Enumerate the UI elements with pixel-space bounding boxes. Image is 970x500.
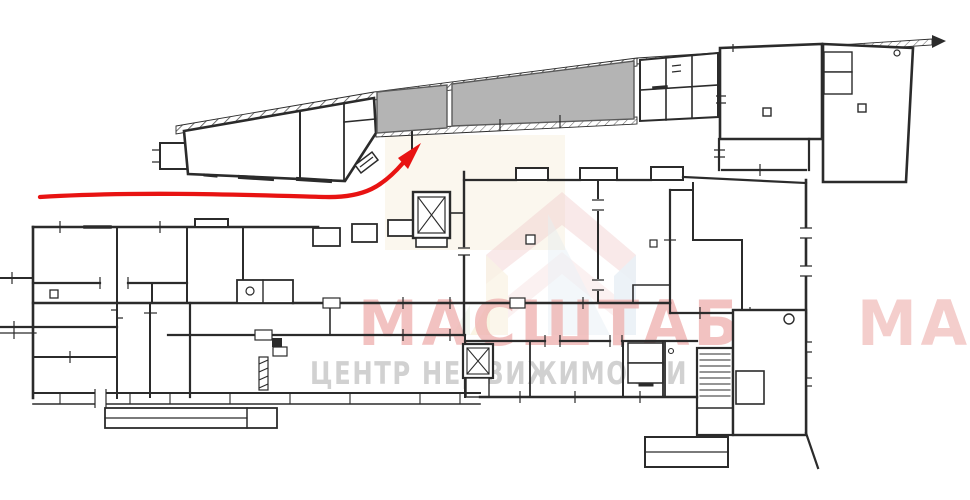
room-a (720, 44, 822, 139)
bottom-band (33, 389, 697, 428)
watermark-title: МАСШТАБ (358, 287, 743, 360)
shaded-hall-small (377, 85, 447, 133)
wall-end-arrow-icon (932, 35, 946, 48)
floorplan-svg: МАСШТАБ МАСШТАБ ЦЕНТР НЕДВИЖИМОСТИ (0, 0, 970, 500)
watermark-title-tile-fragment: МАСШТАБ (857, 287, 970, 360)
tall-right-room (733, 310, 806, 435)
staircase (697, 348, 733, 435)
floorplan-page: МАСШТАБ МАСШТАБ ЦЕНТР НЕДВИЖИМОСТИ (0, 0, 970, 500)
elevator-shaft-upper (413, 192, 450, 247)
floorplan-walls (0, 35, 946, 468)
top-right-wing (640, 44, 913, 182)
elevator-shaft-lower (463, 344, 493, 397)
